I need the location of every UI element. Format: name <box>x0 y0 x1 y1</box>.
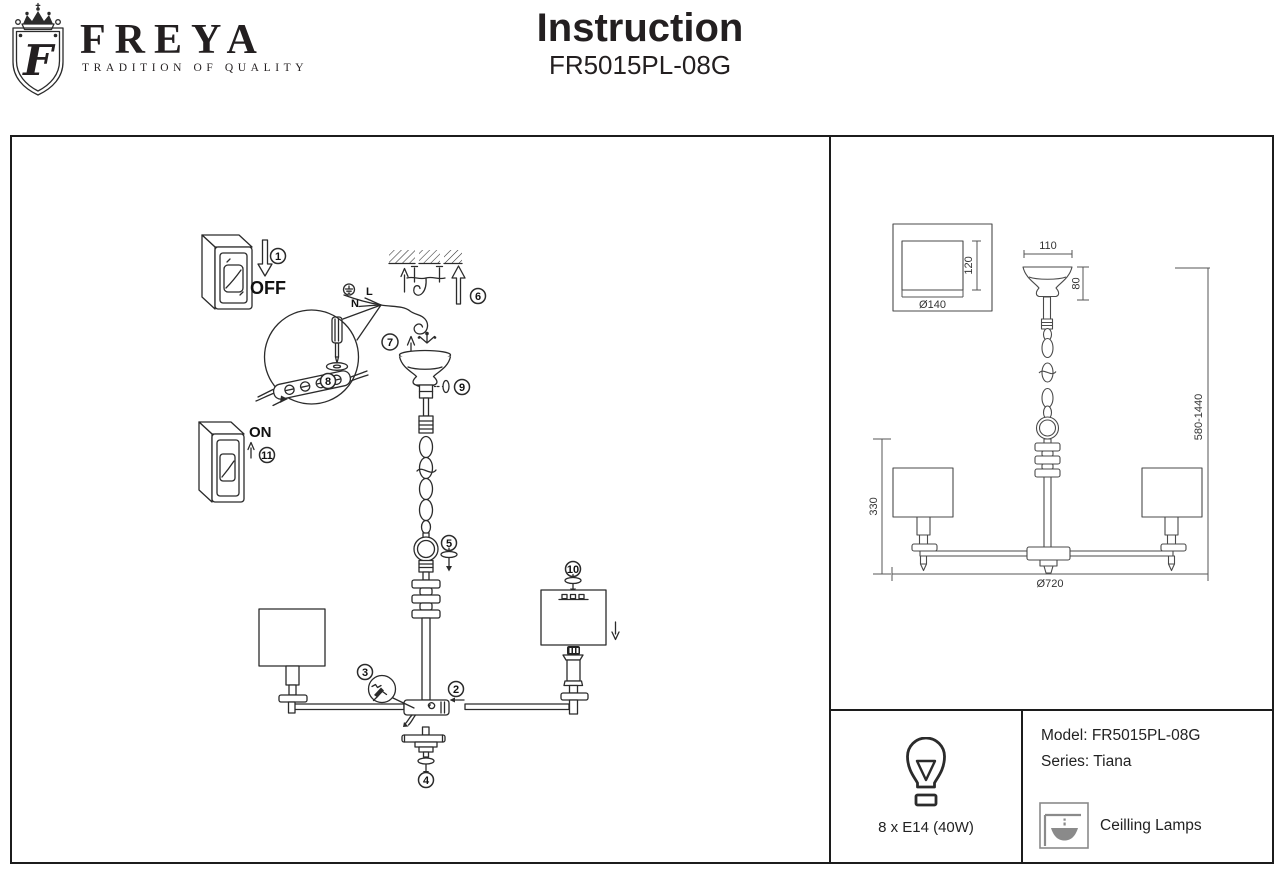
dim-canopy-width: 110 <box>1039 240 1057 252</box>
bottom-finial <box>402 727 445 776</box>
left-arm <box>294 704 404 710</box>
dim-canopy-height: 80 <box>1071 277 1083 289</box>
svg-text:7: 7 <box>387 337 393 349</box>
main-frame: 1 OFF 11 ON <box>10 135 1274 864</box>
assembly-diagram: 1 OFF 11 ON <box>12 137 829 862</box>
dim-body-height: 330 <box>868 497 880 515</box>
chain-dim <box>1037 329 1059 444</box>
series-line: Series: Tiana <box>1041 753 1131 771</box>
svg-text:9: 9 <box>459 382 465 394</box>
crown-icon <box>16 4 61 30</box>
info-cell: Model: FR5015PL-08G Series: Tiana Ceilli… <box>1023 711 1274 862</box>
mount-box <box>893 224 992 311</box>
brand-name: FREYA <box>80 16 266 64</box>
category-label: Ceilling Lamps <box>1100 817 1202 835</box>
svg-text:4: 4 <box>423 775 430 787</box>
column-dim <box>1035 443 1060 547</box>
wire-neutral-label: N <box>351 298 359 310</box>
svg-text:6: 6 <box>475 291 481 303</box>
instruction-sheet: F FREYA TRADITION OF QUALITY Instruction… <box>0 0 1280 875</box>
chain <box>414 398 438 572</box>
dim-mount-depth: 120 <box>963 256 975 274</box>
brand-tagline: TRADITION OF QUALITY <box>82 62 308 74</box>
svg-text:3: 3 <box>362 667 368 679</box>
svg-text:8: 8 <box>325 376 331 388</box>
title-block: Instruction FR5015PL-08G <box>440 6 840 80</box>
canopy <box>400 351 451 399</box>
arrow-up-icon <box>452 266 465 304</box>
canopy-dim <box>1023 267 1072 329</box>
model-line: Model: FR5015PL-08G <box>1041 727 1200 745</box>
svg-text:1: 1 <box>275 251 281 263</box>
right-arm <box>465 704 569 710</box>
bulb-spec: 8 x E14 (40W) <box>878 819 974 836</box>
on-switch <box>199 422 244 502</box>
off-switch <box>202 235 252 309</box>
bulb-icon <box>904 737 948 809</box>
right-shade-assembly <box>541 590 606 714</box>
arrow-up-icon <box>248 443 254 459</box>
hub <box>403 700 449 727</box>
hub-dim <box>1027 547 1070 573</box>
dim-mount-diameter: Ø140 <box>919 299 946 311</box>
arrow-up-small-icon <box>401 269 408 293</box>
svg-text:11: 11 <box>261 450 273 462</box>
logo-letter: F <box>22 36 56 85</box>
dimension-diagram: 120 Ø140 <box>831 137 1272 709</box>
arrow-down-small-icon <box>612 622 619 640</box>
dim-drop-range: 580-1440 <box>1193 394 1205 441</box>
ceiling-lamp-icon <box>1039 802 1089 849</box>
svg-text:2: 2 <box>453 684 459 696</box>
centre-column <box>412 572 440 700</box>
arrow-down-icon <box>258 240 272 276</box>
wire-hook <box>381 305 427 334</box>
ceiling-hatch <box>389 250 462 264</box>
wire-live-label: L <box>366 286 373 298</box>
mounting-screws <box>407 267 445 296</box>
shield-f-icon: F <box>13 28 63 95</box>
category-row: Ceilling Lamps <box>1039 802 1202 849</box>
on-label: ON <box>249 424 272 441</box>
dim-fixture-diameter: Ø720 <box>1037 578 1064 590</box>
off-label: OFF <box>250 278 286 298</box>
bulb-cell: 8 x E14 (40W) <box>831 711 1021 862</box>
freya-logo: F <box>6 2 70 98</box>
left-shade-assembly <box>259 609 325 713</box>
model-number: FR5015PL-08G <box>440 50 840 80</box>
wing-screw-5 <box>441 548 457 572</box>
ceiling-hook-icon <box>414 278 426 295</box>
page-title: Instruction <box>440 6 840 50</box>
